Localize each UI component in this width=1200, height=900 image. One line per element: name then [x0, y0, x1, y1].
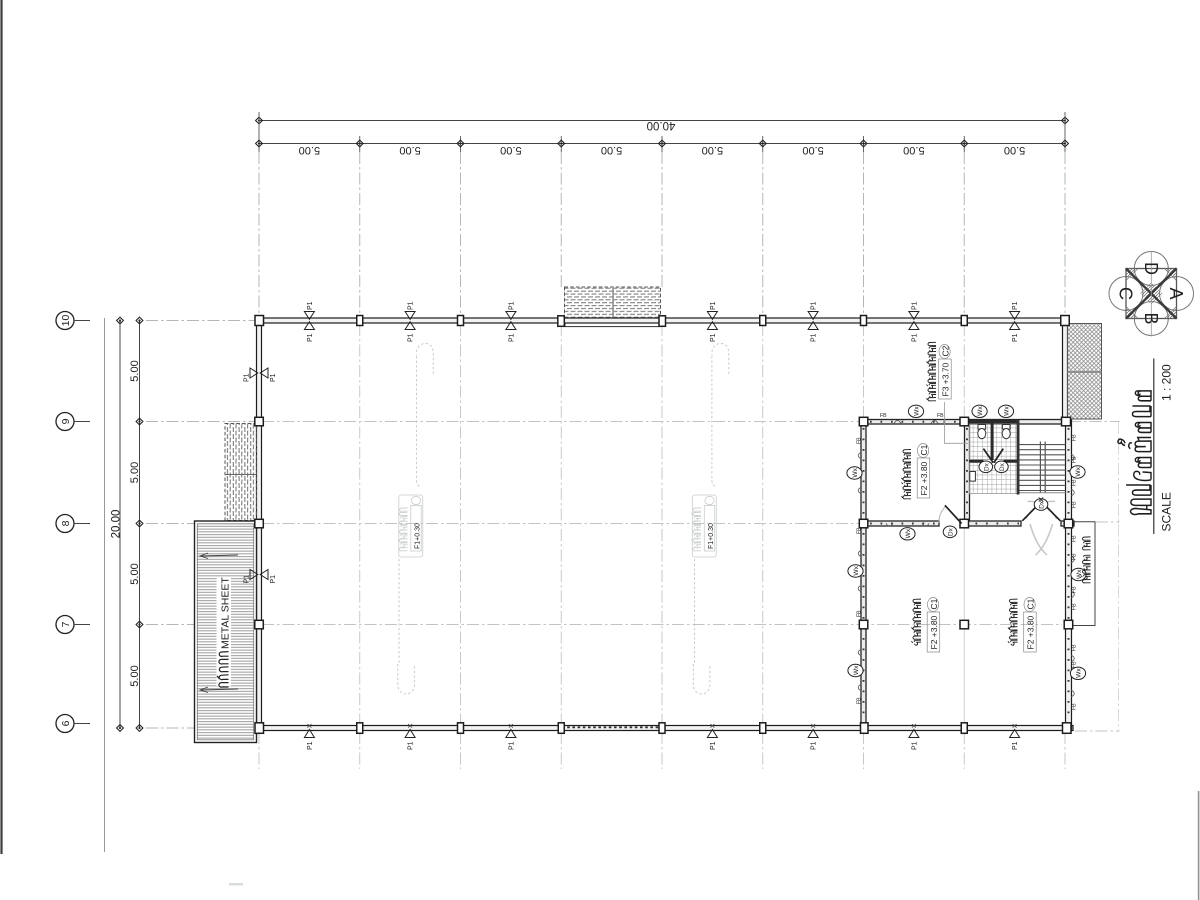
- svg-text:F1+0.30: F1+0.30: [415, 523, 422, 549]
- svg-text:5.00: 5.00: [1004, 144, 1025, 156]
- svg-text:10: 10: [60, 315, 72, 327]
- svg-text:FB: FB: [1072, 644, 1078, 651]
- svg-text:C2: C2: [940, 345, 950, 356]
- svg-text:5.00: 5.00: [702, 144, 723, 156]
- svg-text:FB: FB: [937, 413, 944, 419]
- svg-text:7: 7: [60, 621, 72, 627]
- svg-text:SCALE: SCALE: [1160, 492, 1174, 531]
- svg-text:FB: FB: [1072, 434, 1078, 441]
- svg-text:5.00: 5.00: [129, 462, 141, 483]
- svg-text:F2 +3.80: F2 +3.80: [929, 615, 939, 649]
- svg-text:FB: FB: [857, 527, 863, 534]
- svg-text:C: C: [1116, 287, 1136, 300]
- svg-text:20.00: 20.00: [111, 510, 123, 539]
- svg-text:5.00: 5.00: [129, 360, 141, 381]
- svg-text:FB: FB: [857, 437, 863, 444]
- svg-text:F3 +3.70: F3 +3.70: [940, 362, 950, 396]
- svg-text:FB: FB: [857, 610, 863, 617]
- svg-text:B: B: [1141, 312, 1161, 324]
- svg-text:8: 8: [60, 520, 72, 526]
- svg-text:F2 +3.80: F2 +3.80: [919, 461, 929, 495]
- svg-text:FB: FB: [1072, 586, 1078, 593]
- svg-text:5.00: 5.00: [399, 144, 420, 156]
- svg-text:D: D: [1141, 262, 1161, 275]
- svg-text:40.00: 40.00: [647, 119, 676, 131]
- svg-text:5.00: 5.00: [299, 144, 320, 156]
- svg-text:5.00: 5.00: [500, 144, 521, 156]
- svg-text:5.00: 5.00: [129, 665, 141, 686]
- svg-text:FB: FB: [1072, 553, 1078, 560]
- svg-text:FB: FB: [1072, 603, 1078, 610]
- svg-text:FB: FB: [1072, 535, 1078, 542]
- svg-text:5.00: 5.00: [802, 144, 823, 156]
- svg-text:FB: FB: [1072, 661, 1078, 668]
- svg-text:FB: FB: [1072, 456, 1078, 463]
- svg-text:C1: C1: [929, 598, 939, 609]
- svg-text:1 : 200: 1 : 200: [1160, 364, 1174, 401]
- svg-text:6: 6: [60, 720, 72, 726]
- svg-text:FB: FB: [1072, 501, 1078, 508]
- svg-text:A: A: [1166, 287, 1186, 299]
- svg-text:FB: FB: [1072, 703, 1078, 710]
- svg-text:C1: C1: [1025, 598, 1035, 609]
- svg-text:FB: FB: [857, 697, 863, 704]
- svg-text:F1+0.30: F1+0.30: [708, 523, 715, 549]
- svg-text:F2 +3.80: F2 +3.80: [1025, 615, 1035, 649]
- svg-text:METAL SHEET: METAL SHEET: [220, 577, 232, 649]
- svg-text:FB: FB: [880, 413, 887, 419]
- svg-text:9: 9: [60, 418, 72, 424]
- svg-text:5.00: 5.00: [601, 144, 622, 156]
- svg-text:5.00: 5.00: [129, 563, 141, 584]
- svg-text:5.00: 5.00: [903, 144, 924, 156]
- svg-text:FB: FB: [1072, 479, 1078, 486]
- svg-text:C1: C1: [919, 444, 929, 455]
